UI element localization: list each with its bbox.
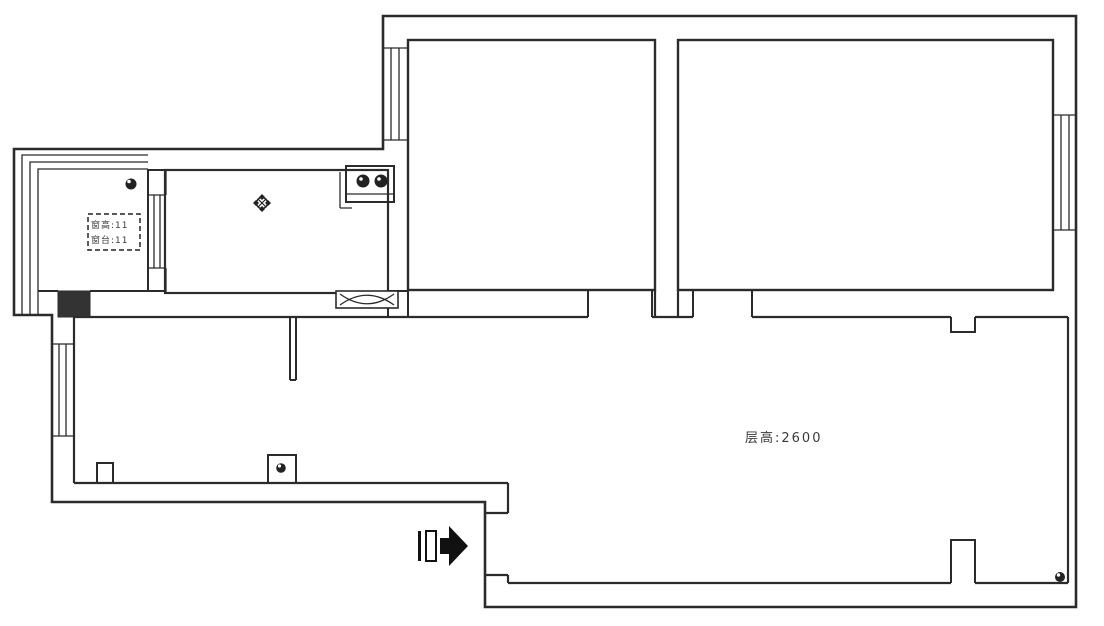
ceiling-lamp-icon	[253, 194, 271, 212]
stove-symbol	[340, 166, 394, 208]
window-bedroom-b	[1053, 115, 1076, 230]
floor-plan-canvas: 窗高:11 窗台:11 层高:2600	[0, 0, 1104, 626]
bedroom-b-wall	[678, 40, 1053, 290]
balcony-note-line1: 窗高:11	[91, 219, 129, 231]
pass-through-window	[336, 291, 398, 308]
kitchen-wall	[165, 170, 388, 293]
exterior-wall	[14, 16, 1076, 607]
ceiling-light-icon	[126, 179, 137, 190]
living-room-inner-walls	[508, 317, 1068, 583]
floor-plan-svg: 窗高:11 窗台:11 层高:2600	[0, 0, 1104, 626]
structural-column	[58, 291, 90, 317]
bedroom-divider-wall	[655, 290, 678, 317]
window-bedroom-a	[383, 48, 408, 140]
wall-stub-bottom	[951, 540, 975, 583]
ceiling-light-icon	[276, 463, 286, 473]
entry-wall	[485, 483, 508, 583]
ceiling-light-icon	[1055, 572, 1065, 582]
bathroom-right-wall	[290, 317, 296, 380]
windows	[52, 48, 1076, 436]
walls	[14, 16, 1076, 607]
equipment-note-box: 窗高:11 窗台:11	[88, 214, 140, 250]
ceiling-height-label: 层高:2600	[745, 430, 822, 446]
door-opening-jambs	[588, 290, 752, 317]
balcony-kitchen-wall	[148, 169, 165, 291]
entry-arrow-icon	[418, 526, 468, 566]
wall-notch	[97, 463, 113, 483]
window-balcony-kitchen	[148, 170, 166, 293]
bedroom-a-wall	[408, 40, 655, 290]
wall-stub-top	[951, 317, 975, 332]
window-bathroom	[52, 344, 74, 436]
balcony-note-line2: 窗台:11	[91, 234, 129, 246]
